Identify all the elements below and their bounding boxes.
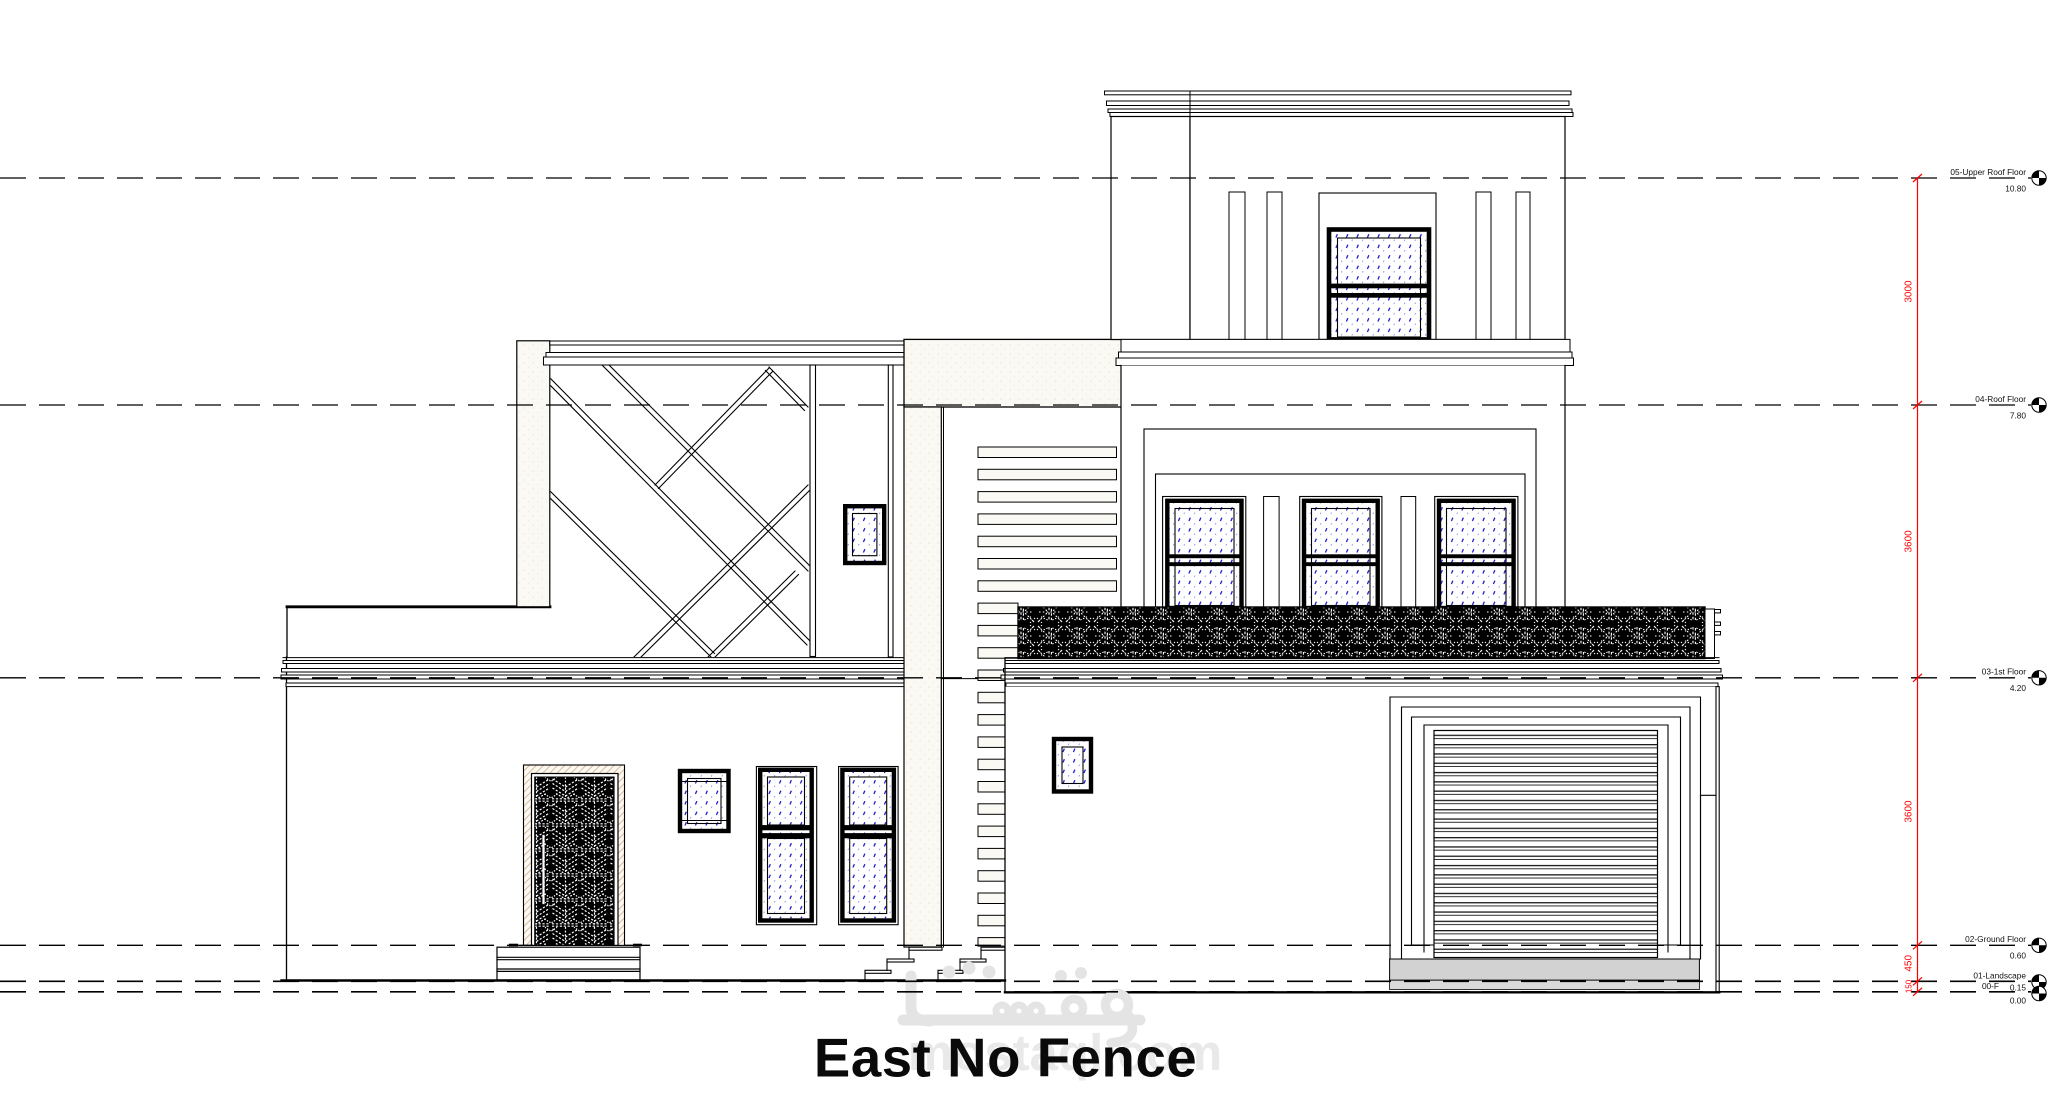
svg-text:150: 150 bbox=[1905, 979, 1914, 993]
svg-text:0.15: 0.15 bbox=[2010, 983, 2027, 993]
svg-text:0.00: 0.00 bbox=[2010, 996, 2027, 1006]
svg-text:10.80: 10.80 bbox=[2005, 184, 2026, 194]
svg-text:3000: 3000 bbox=[1904, 280, 1915, 303]
svg-text:7.80: 7.80 bbox=[2010, 411, 2027, 421]
svg-text:450: 450 bbox=[1904, 955, 1915, 972]
svg-text:05-Upper Roof Floor: 05-Upper Roof Floor bbox=[1950, 167, 2026, 177]
svg-text:00-F: 00-F bbox=[1982, 981, 1999, 991]
svg-text:3600: 3600 bbox=[1904, 800, 1915, 823]
svg-text:04-Roof Floor: 04-Roof Floor bbox=[1975, 394, 2026, 404]
svg-text:02-Ground Floor: 02-Ground Floor bbox=[1965, 934, 2026, 944]
svg-text:01-Landscape: 01-Landscape bbox=[1973, 970, 2026, 980]
svg-text:East No Fence: East No Fence bbox=[814, 1028, 1197, 1089]
svg-text:0.60: 0.60 bbox=[2010, 951, 2027, 961]
svg-text:4.20: 4.20 bbox=[2010, 683, 2027, 693]
svg-text:03-1st Floor: 03-1st Floor bbox=[1982, 667, 2027, 677]
svg-text:3600: 3600 bbox=[1904, 530, 1915, 553]
